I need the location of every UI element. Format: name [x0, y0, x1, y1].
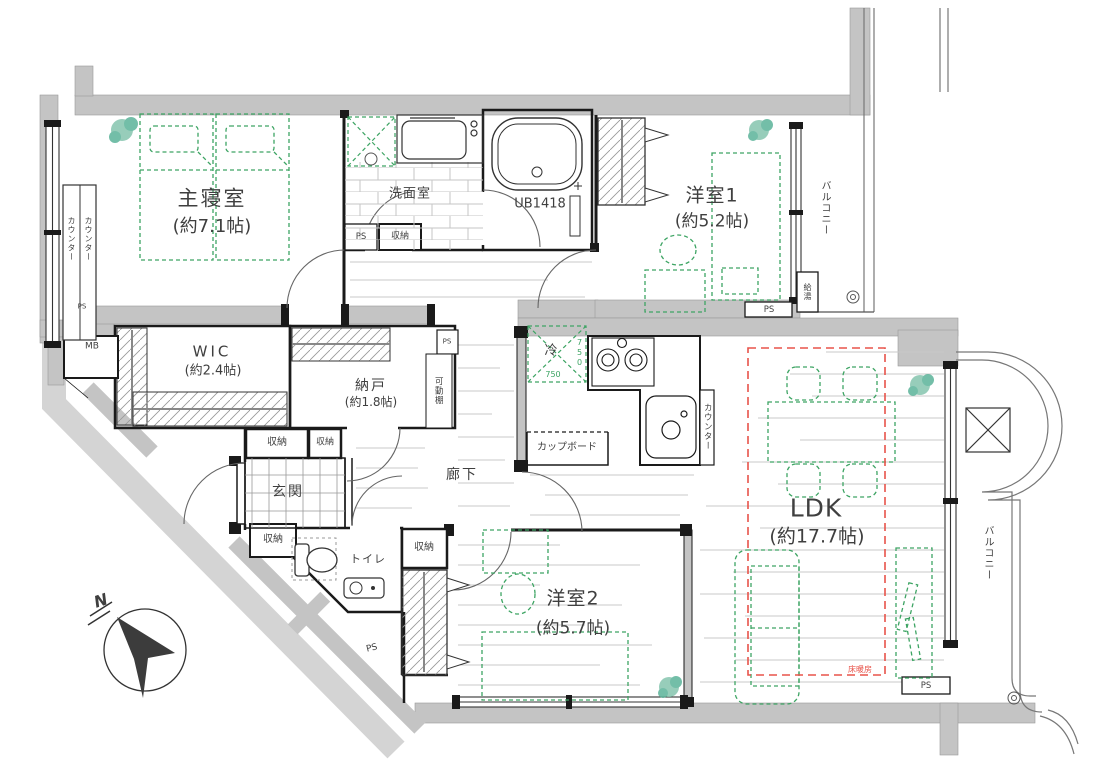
ps-label-nando: PS	[443, 339, 452, 346]
room-size-youshitsu2: (約5.7帖)	[536, 621, 610, 638]
sofa-icon	[735, 550, 799, 704]
movable-shelf-label: 可動棚	[434, 377, 443, 406]
bedroom1-furniture-icon	[645, 153, 780, 312]
balcony-top-label: バルコニー	[819, 181, 829, 236]
tv-board-icon	[896, 548, 932, 678]
room-label-youshitsu2: 洋室2	[546, 590, 599, 609]
meter-box-label: MB	[85, 343, 99, 352]
floor-heating-label: 床暖房	[847, 666, 873, 674]
storage-label-washroom: 収納	[391, 233, 409, 242]
balcony-right-label: バルコニー	[982, 526, 992, 581]
room-size-youshitsu1: (約5.2帖)	[675, 214, 749, 231]
storage-label-entrance-b: 収納	[316, 439, 334, 448]
north-arrow-icon	[88, 602, 186, 698]
ps-label-west: PS	[78, 304, 87, 311]
ps-label-washroom: PS	[356, 233, 367, 242]
room-label-toilet: トイレ	[350, 554, 386, 565]
vanity-icon	[397, 115, 483, 163]
room-size-ldk: (約17.7帖)	[769, 528, 864, 547]
refrigerator-depth-label: 750	[545, 371, 560, 379]
room-label-nando: 納戸	[355, 379, 387, 393]
room-label-entrance: 玄関	[272, 485, 304, 499]
ps-label-youshitsu1: PS	[764, 306, 775, 315]
counter-kitchen-label: カウンター	[703, 403, 712, 451]
dining-set-icon	[768, 367, 895, 497]
room-size-master: (約7.1帖)	[173, 218, 252, 236]
room-label-bath: UB1418	[514, 198, 566, 211]
room-size-nando: (約1.8帖)	[345, 396, 397, 408]
refrigerator-label: 冷	[544, 345, 557, 358]
room-label-wic: WIC	[193, 345, 232, 360]
storage-label-entrance-c: 収納	[263, 535, 283, 545]
washroom-fixtures	[345, 115, 483, 250]
storage-label-entrance-a: 収納	[267, 438, 287, 448]
water-heater-label: 給湯	[803, 283, 811, 301]
counter-master-label-b: カウンター	[84, 217, 92, 262]
floor-plan-drawing	[0, 0, 1100, 777]
floor-plan: 主寝室 (約7.1帖) 洗面室 UB1418 洋室1 (約5.2帖) 洋室2 (…	[0, 0, 1100, 777]
storage-label-youshitsu2: 収納	[414, 543, 434, 553]
bathtub-icon	[492, 118, 582, 236]
refrigerator-width-label: 750	[575, 338, 583, 368]
room-label-youshitsu1: 洋室1	[685, 187, 738, 206]
room-label-ldk: LDK	[790, 496, 843, 521]
ps-label-southeast: PS	[921, 682, 932, 691]
room-label-washroom: 洗面室	[389, 188, 431, 201]
room-label-corridor: 廊下	[446, 468, 478, 482]
balcony-partition-icon	[966, 408, 1010, 452]
cupboard-label: カップボード	[537, 443, 597, 453]
bedroom2-furniture-icon	[482, 530, 628, 700]
counter-master-label-a: カウンター	[67, 217, 75, 262]
balcony-railings	[800, 8, 1078, 754]
room-label-master: 主寝室	[178, 189, 247, 210]
room-size-wic: (約2.4帖)	[185, 365, 242, 378]
